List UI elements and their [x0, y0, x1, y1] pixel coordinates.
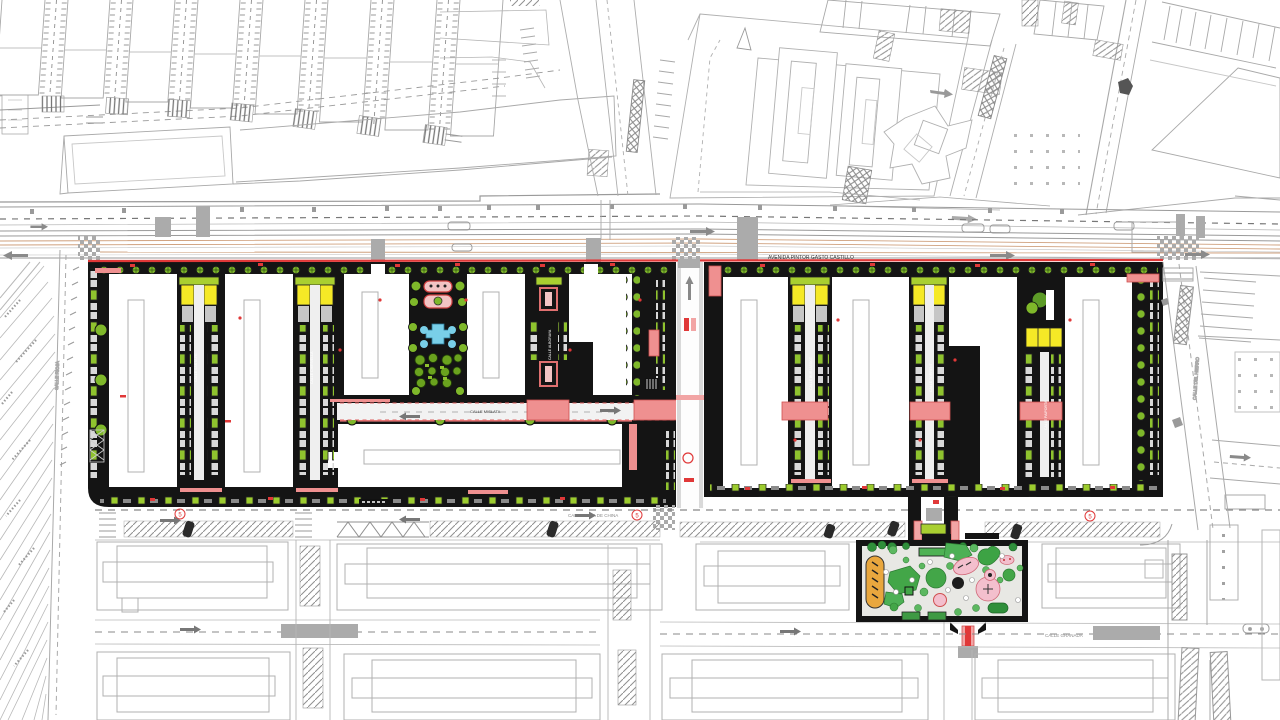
svg-text:CALLE MISLATA: CALLE MISLATA [470, 409, 501, 414]
svg-text:CALLE CHIRIVELLA: CALLE CHIRIVELLA [310, 351, 314, 384]
svg-text:CALLE BURJASSOT: CALLE BURJASSOT [809, 356, 813, 390]
svg-text:CALLE ALBORAYA: CALLE ALBORAYA [548, 329, 552, 360]
svg-text:CALLE PAIPORTA: CALLE PAIPORTA [1044, 400, 1048, 430]
svg-text:CALLE RIOJA: CALLE RIOJA [54, 361, 60, 390]
svg-text:CALLE SANTA FE: CALLE SANTA FE [194, 353, 198, 382]
svg-text:CALLE GRANADA: CALLE GRANADA [1045, 633, 1083, 638]
svg-text:CALLE TORRENT: CALLE TORRENT [929, 362, 933, 392]
